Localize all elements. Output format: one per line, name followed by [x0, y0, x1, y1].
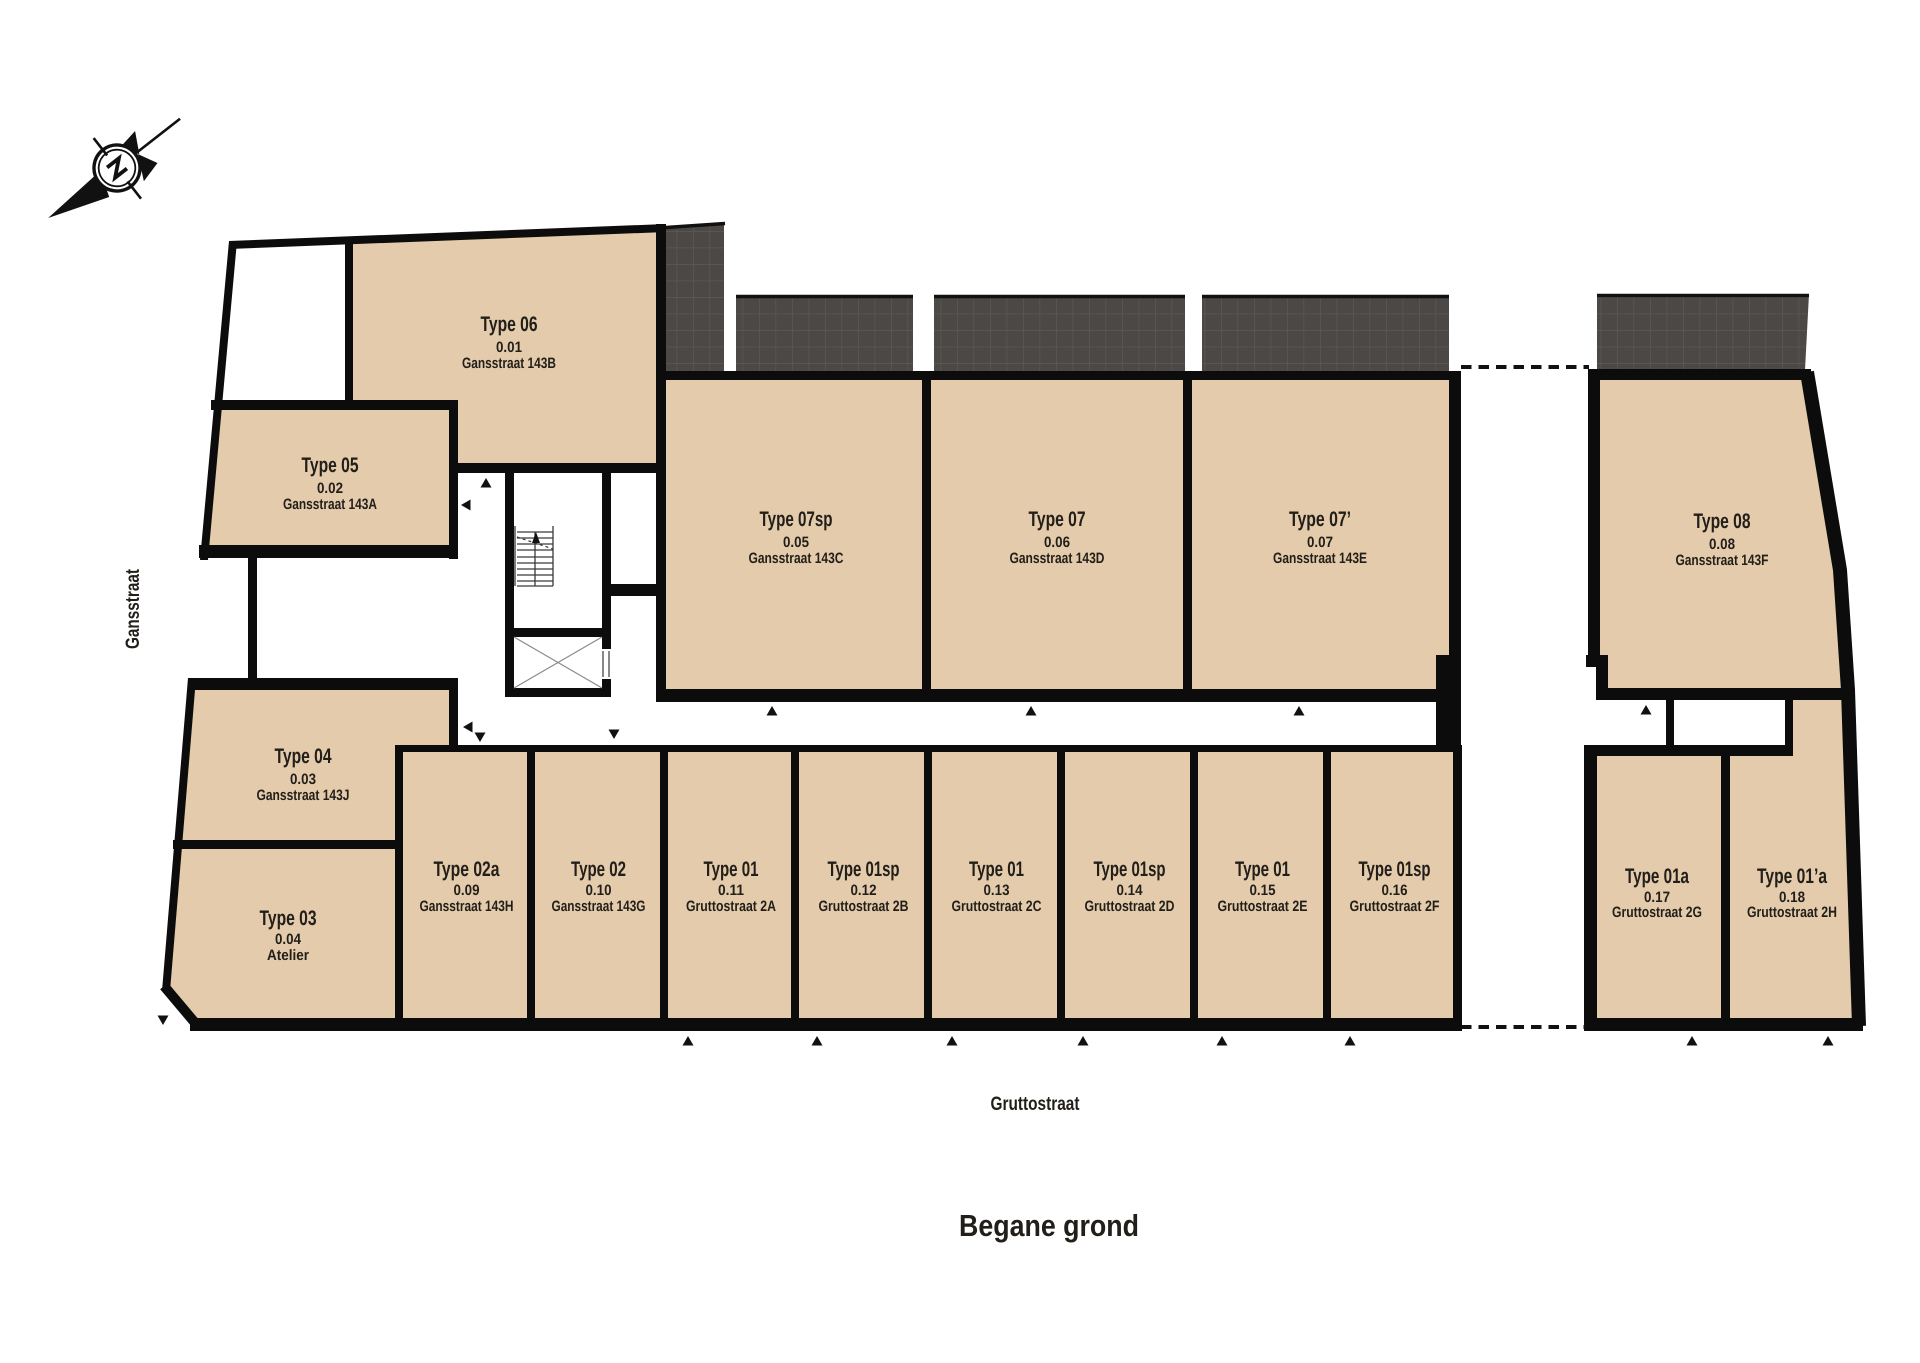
svg-text:Gansstraat 143B: Gansstraat 143B [462, 355, 556, 372]
svg-text:Type 07sp: Type 07sp [760, 508, 833, 531]
svg-text:Gruttostraat 2H: Gruttostraat 2H [1747, 904, 1837, 921]
svg-text:Gruttostraat 2C: Gruttostraat 2C [951, 898, 1041, 915]
svg-text:0.05: 0.05 [783, 534, 809, 551]
svg-text:Gruttostraat 2F: Gruttostraat 2F [1349, 898, 1439, 915]
svg-text:Gruttostraat 2A: Gruttostraat 2A [686, 898, 776, 915]
svg-text:Begane grond: Begane grond [959, 1208, 1139, 1243]
svg-text:Gruttostraat: Gruttostraat [991, 1094, 1081, 1115]
svg-text:0.12: 0.12 [850, 882, 876, 899]
svg-text:Type 01’a: Type 01’a [1757, 865, 1827, 888]
svg-text:Type 02: Type 02 [571, 858, 626, 881]
svg-text:Gansstraat 143J: Gansstraat 143J [256, 787, 349, 804]
svg-text:Gansstraat 143H: Gansstraat 143H [419, 898, 513, 915]
svg-text:Type 01sp: Type 01sp [1359, 858, 1431, 881]
svg-text:Type 01sp: Type 01sp [828, 858, 900, 881]
svg-text:0.15: 0.15 [1249, 882, 1275, 899]
svg-text:Type 02a: Type 02a [434, 858, 500, 881]
svg-text:0.09: 0.09 [453, 882, 479, 899]
svg-text:0.07: 0.07 [1307, 534, 1333, 551]
svg-text:Type 01sp: Type 01sp [1094, 858, 1166, 881]
svg-text:Gansstraat 143G: Gansstraat 143G [551, 898, 645, 915]
svg-text:Atelier: Atelier [267, 947, 309, 964]
svg-text:0.08: 0.08 [1709, 536, 1735, 553]
svg-text:0.11: 0.11 [718, 882, 744, 899]
svg-text:0.04: 0.04 [275, 931, 302, 948]
svg-text:Type 01: Type 01 [704, 858, 759, 881]
svg-text:0.01: 0.01 [496, 339, 522, 356]
svg-text:Type 08: Type 08 [1694, 510, 1751, 533]
svg-text:Gansstraat 143E: Gansstraat 143E [1273, 550, 1367, 567]
svg-text:Type 05: Type 05 [302, 454, 359, 477]
svg-text:0.14: 0.14 [1116, 882, 1143, 899]
svg-text:Gansstraat 143A: Gansstraat 143A [283, 496, 377, 513]
svg-text:Type 04: Type 04 [275, 745, 332, 768]
svg-text:Type 03: Type 03 [260, 907, 317, 930]
svg-text:Type 06: Type 06 [481, 313, 538, 336]
svg-text:0.13: 0.13 [983, 882, 1009, 899]
svg-text:0.06: 0.06 [1044, 534, 1070, 551]
svg-text:Type 01: Type 01 [1235, 858, 1290, 881]
svg-text:0.02: 0.02 [317, 480, 343, 497]
svg-text:Gansstraat: Gansstraat [123, 568, 144, 649]
svg-text:Type 01: Type 01 [969, 858, 1024, 881]
svg-text:Gruttostraat 2G: Gruttostraat 2G [1612, 904, 1702, 921]
svg-text:Gruttostraat 2D: Gruttostraat 2D [1084, 898, 1174, 915]
svg-text:0.16: 0.16 [1381, 882, 1407, 899]
svg-text:0.03: 0.03 [290, 771, 316, 788]
svg-text:0.10: 0.10 [585, 882, 611, 899]
svg-text:Gansstraat 143F: Gansstraat 143F [1675, 552, 1768, 569]
svg-text:Type 01a: Type 01a [1625, 865, 1689, 888]
svg-text:Type 07’: Type 07’ [1289, 508, 1351, 531]
svg-text:Gruttostraat 2E: Gruttostraat 2E [1217, 898, 1307, 915]
svg-text:Gruttostraat 2B: Gruttostraat 2B [818, 898, 908, 915]
svg-text:Type 07: Type 07 [1029, 508, 1086, 531]
svg-text:Gansstraat 143D: Gansstraat 143D [1009, 550, 1104, 567]
svg-text:Gansstraat 143C: Gansstraat 143C [748, 550, 843, 567]
